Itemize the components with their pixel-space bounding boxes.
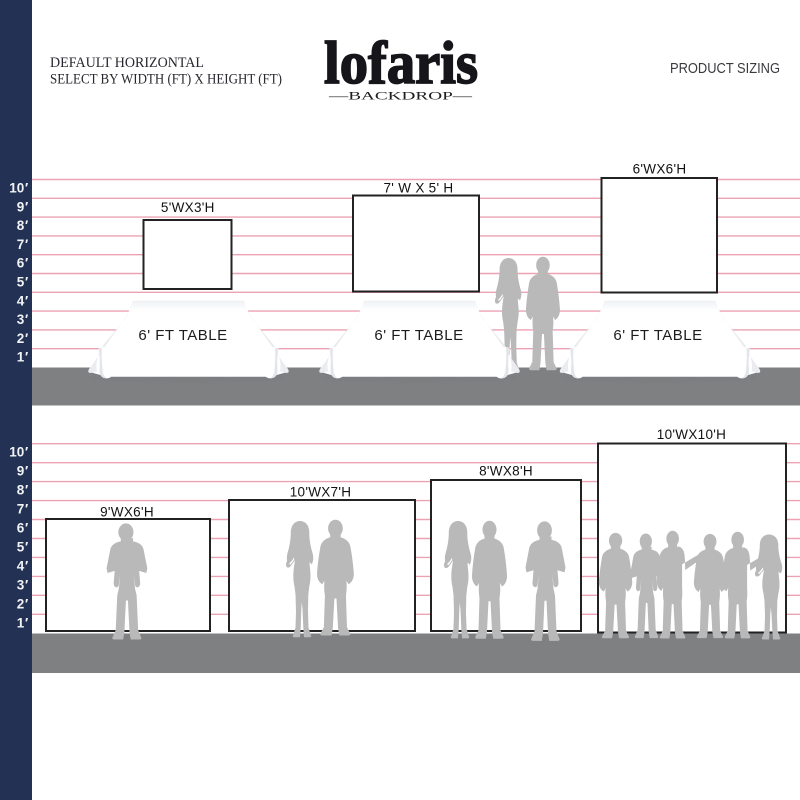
svg-text:6′: 6′ xyxy=(17,521,29,536)
svg-text:9′: 9′ xyxy=(17,464,29,479)
svg-text:8′: 8′ xyxy=(17,218,29,233)
svg-text:6' FT TABLE: 6' FT TABLE xyxy=(138,327,227,344)
svg-text:10′: 10′ xyxy=(9,181,28,196)
svg-text:5'WX3'H: 5'WX3'H xyxy=(161,200,215,215)
svg-text:6′: 6′ xyxy=(17,256,29,271)
svg-text:6' FT TABLE: 6' FT TABLE xyxy=(374,327,463,344)
svg-text:1′: 1′ xyxy=(17,615,29,630)
svg-text:9′: 9′ xyxy=(17,199,29,214)
svg-text:3′: 3′ xyxy=(17,312,29,327)
svg-text:10'WX7'H: 10'WX7'H xyxy=(290,485,352,500)
svg-text:4′: 4′ xyxy=(17,558,29,573)
svg-text:10′: 10′ xyxy=(9,445,28,460)
svg-text:1′: 1′ xyxy=(17,350,29,365)
svg-text:4′: 4′ xyxy=(17,293,29,308)
svg-text:PRODUCT SIZING: PRODUCT SIZING xyxy=(670,60,780,77)
svg-text:2′: 2′ xyxy=(17,596,29,611)
svg-text:6'WX6'H: 6'WX6'H xyxy=(633,162,687,177)
svg-text:SELECT BY WIDTH (FT) X HEIGHT: SELECT BY WIDTH (FT) X HEIGHT (FT) xyxy=(50,72,282,88)
svg-text:2′: 2′ xyxy=(17,331,29,346)
svg-text:lofaris: lofaris xyxy=(324,30,478,96)
svg-text:10'WX10'H: 10'WX10'H xyxy=(657,427,726,442)
svg-text:7' W X 5' H: 7' W X 5' H xyxy=(384,181,454,196)
svg-text:—BACKDROP—: —BACKDROP— xyxy=(327,91,472,103)
svg-text:8′: 8′ xyxy=(17,483,29,498)
svg-text:8'WX8'H: 8'WX8'H xyxy=(479,464,533,479)
svg-text:5′: 5′ xyxy=(17,275,29,290)
svg-text:9'WX6'H: 9'WX6'H xyxy=(100,505,154,520)
svg-text:5′: 5′ xyxy=(17,540,29,555)
svg-text:7′: 7′ xyxy=(17,237,29,252)
svg-text:3′: 3′ xyxy=(17,577,29,592)
svg-text:DEFAULT HORIZONTAL: DEFAULT HORIZONTAL xyxy=(50,55,204,71)
svg-text:7′: 7′ xyxy=(17,502,29,517)
svg-text:6' FT TABLE: 6' FT TABLE xyxy=(613,327,702,344)
